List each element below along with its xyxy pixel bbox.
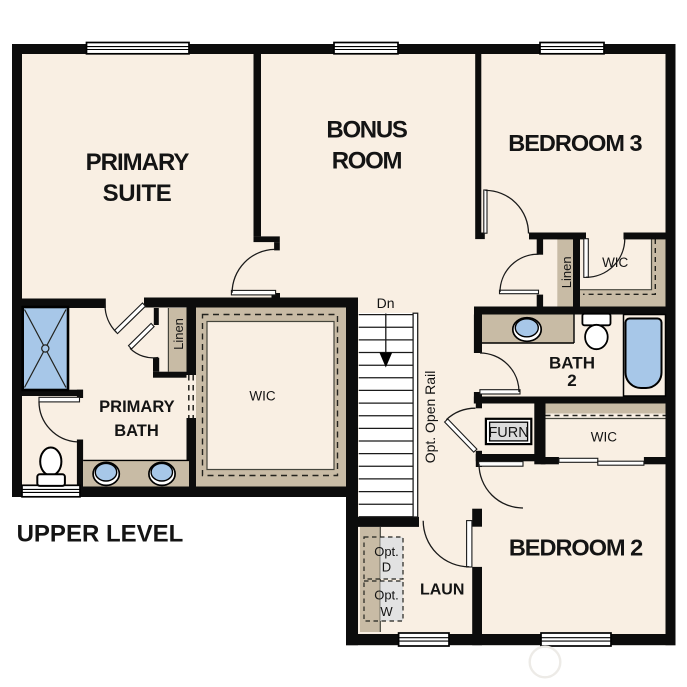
svg-text:2: 2 [567,371,576,390]
svg-text:FURN: FURN [488,425,528,441]
svg-text:Opt.: Opt. [374,588,399,603]
svg-text:Opt.: Opt. [374,544,399,559]
svg-text:Opt. Open Rail: Opt. Open Rail [422,371,438,464]
svg-text:BONUS: BONUS [326,116,407,143]
svg-text:Dn: Dn [377,295,395,311]
svg-text:WIC: WIC [249,389,275,404]
svg-text:ROOM: ROOM [332,147,402,174]
svg-text:UPPER LEVEL: UPPER LEVEL [17,521,184,548]
svg-text:Linen: Linen [559,256,574,288]
svg-text:BATH: BATH [549,354,595,373]
svg-text:BATH: BATH [114,422,159,440]
svg-text:W: W [380,604,393,619]
svg-text:PRIMARY: PRIMARY [86,149,190,176]
svg-text:D: D [382,559,391,574]
svg-text:LAUN: LAUN [420,582,464,599]
svg-text:Linen: Linen [171,318,186,350]
svg-text:BEDROOM 2: BEDROOM 2 [509,535,643,561]
svg-text:PRIMARY: PRIMARY [99,398,174,416]
svg-text:BEDROOM 3: BEDROOM 3 [508,130,642,156]
svg-text:WIC: WIC [602,255,628,270]
svg-text:SUITE: SUITE [103,180,172,207]
svg-text:WIC: WIC [591,430,617,445]
